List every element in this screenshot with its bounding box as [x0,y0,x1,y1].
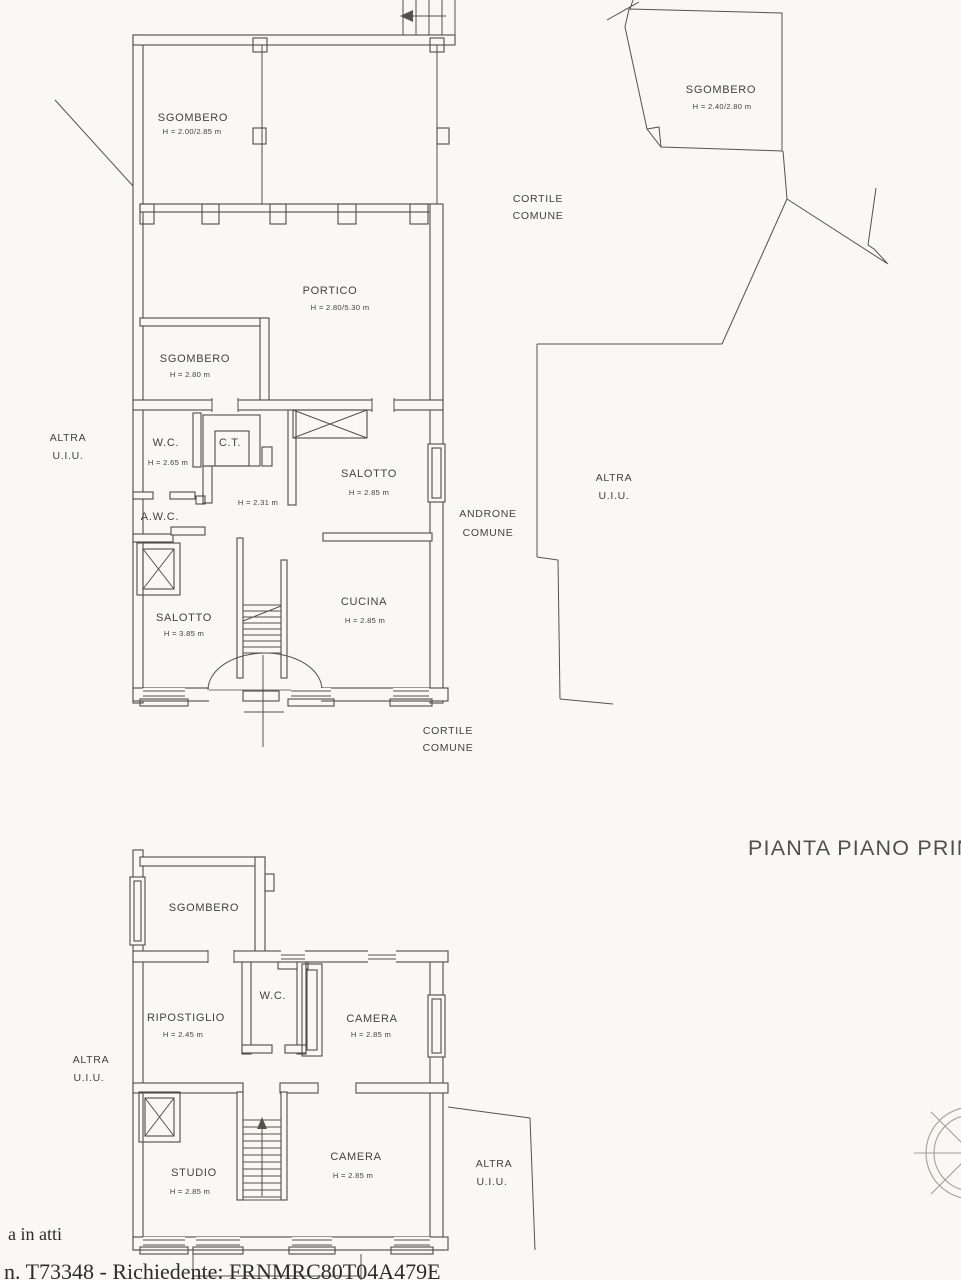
label-ct: C.T. [219,437,241,449]
label-cortile-top-1: CORTILE [513,193,563,205]
label-androne-1: ANDRONE [459,508,516,520]
label-salotto-lower: SALOTTO [156,612,212,624]
label-altra-uiu-left-1: ALTRA [50,432,87,444]
label-awc: A.W.C. [141,511,179,523]
label-ripostiglio: RIPOSTIGLIO [147,1012,225,1024]
label-sgombero-top-height: H = 2.00/2.85 m [163,127,222,136]
first-floor-plan: PIANTA PIANO PRIMO [73,836,961,1280]
label-camera-upper-height: H = 2.85 m [351,1030,391,1039]
label-portico: PORTICO [303,285,358,297]
label-altra-uiu-right-1: ALTRA [596,472,633,484]
annex-outline [607,0,782,151]
label-altra-uiu-left-2: U.I.U. [52,450,83,462]
label-sgombero-annex-height: H = 2.40/2.80 m [693,102,752,111]
floorplan-drawing: SGOMBERO H = 2.00/2.85 m SGOMBERO H = 2.… [0,0,961,1280]
stair-flight-hatched [293,410,367,438]
label-cucina: CUCINA [341,596,387,608]
label-altra-uiu-right-2: U.I.U. [598,490,629,502]
ground-floor-staircase [243,605,281,653]
ground-floor-plan: SGOMBERO H = 2.00/2.85 m SGOMBERO H = 2.… [50,0,888,754]
label-studio: STUDIO [171,1167,217,1179]
plan-title: PIANTA PIANO PRIMO [748,836,961,860]
scanned-page: SGOMBERO H = 2.00/2.85 m SGOMBERO H = 2.… [0,0,961,1280]
label-ff-wc: W.C. [260,990,287,1002]
label-ff-sgombero: SGOMBERO [169,902,239,914]
stair-up-arrow-icon [257,1117,267,1129]
label-cucina-height: H = 2.85 m [345,616,385,625]
first-floor-staircase [237,1092,287,1200]
label-ff-altra-left-2: U.I.U. [73,1072,104,1084]
label-androne-2: COMUNE [463,527,514,539]
label-salotto-upper-height: H = 2.85 m [349,488,389,497]
footer-reference: n. T73348 - Richiedente: FRNMRC80T04A479… [4,1259,441,1280]
footer-note: a in atti [8,1224,62,1244]
label-cortile-top-2: COMUNE [513,210,564,222]
label-wc: W.C. [153,437,180,449]
label-sgombero-top: SGOMBERO [158,112,228,124]
label-camera-lower: CAMERA [330,1151,381,1163]
label-ripostiglio-height: H = 2.45 m [163,1030,203,1039]
label-ff-altra-left-1: ALTRA [73,1054,110,1066]
label-salotto-lower-height: H = 3.85 m [164,629,204,638]
label-sgombero-mid: SGOMBERO [160,353,230,365]
label-ff-altra-right-1: ALTRA [476,1158,513,1170]
label-wc-height: H = 2.65 m [148,458,188,467]
first-floor-shaft-box [139,1092,180,1142]
label-sgombero-annex: SGOMBERO [686,84,756,96]
label-camera-lower-height: H = 2.85 m [333,1171,373,1180]
label-hall-height: H = 2.31 m [238,498,278,507]
shaft-box [137,543,180,595]
compass-rose-icon [914,1095,961,1211]
top-staircase [400,0,455,36]
label-studio-height: H = 2.85 m [170,1187,210,1196]
label-sgombero-mid-height: H = 2.80 m [170,370,210,379]
label-portico-height: H = 2.80/5.30 m [311,303,370,312]
label-camera-upper: CAMERA [346,1013,397,1025]
label-salotto-upper: SALOTTO [341,468,397,480]
stair-direction-arrow-icon [400,10,413,22]
label-cortile-bottom-1: CORTILE [423,725,473,737]
label-cortile-bottom-2: COMUNE [423,742,474,754]
label-ff-altra-right-2: U.I.U. [476,1176,507,1188]
